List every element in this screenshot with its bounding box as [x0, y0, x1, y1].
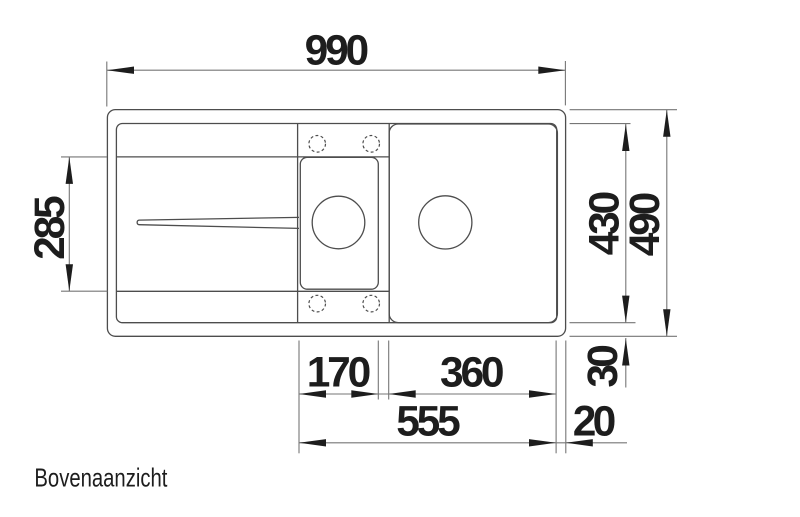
svg-text:360: 360 — [440, 349, 505, 396]
svg-text:490: 490 — [622, 192, 669, 257]
svg-text:555: 555 — [396, 398, 461, 445]
svg-text:285: 285 — [27, 195, 74, 260]
svg-text:20: 20 — [573, 398, 617, 445]
svg-text:170: 170 — [307, 349, 372, 396]
svg-text:30: 30 — [580, 344, 627, 388]
svg-text:Bovenaanzicht: Bovenaanzicht — [34, 463, 168, 493]
svg-text:990: 990 — [305, 28, 370, 75]
